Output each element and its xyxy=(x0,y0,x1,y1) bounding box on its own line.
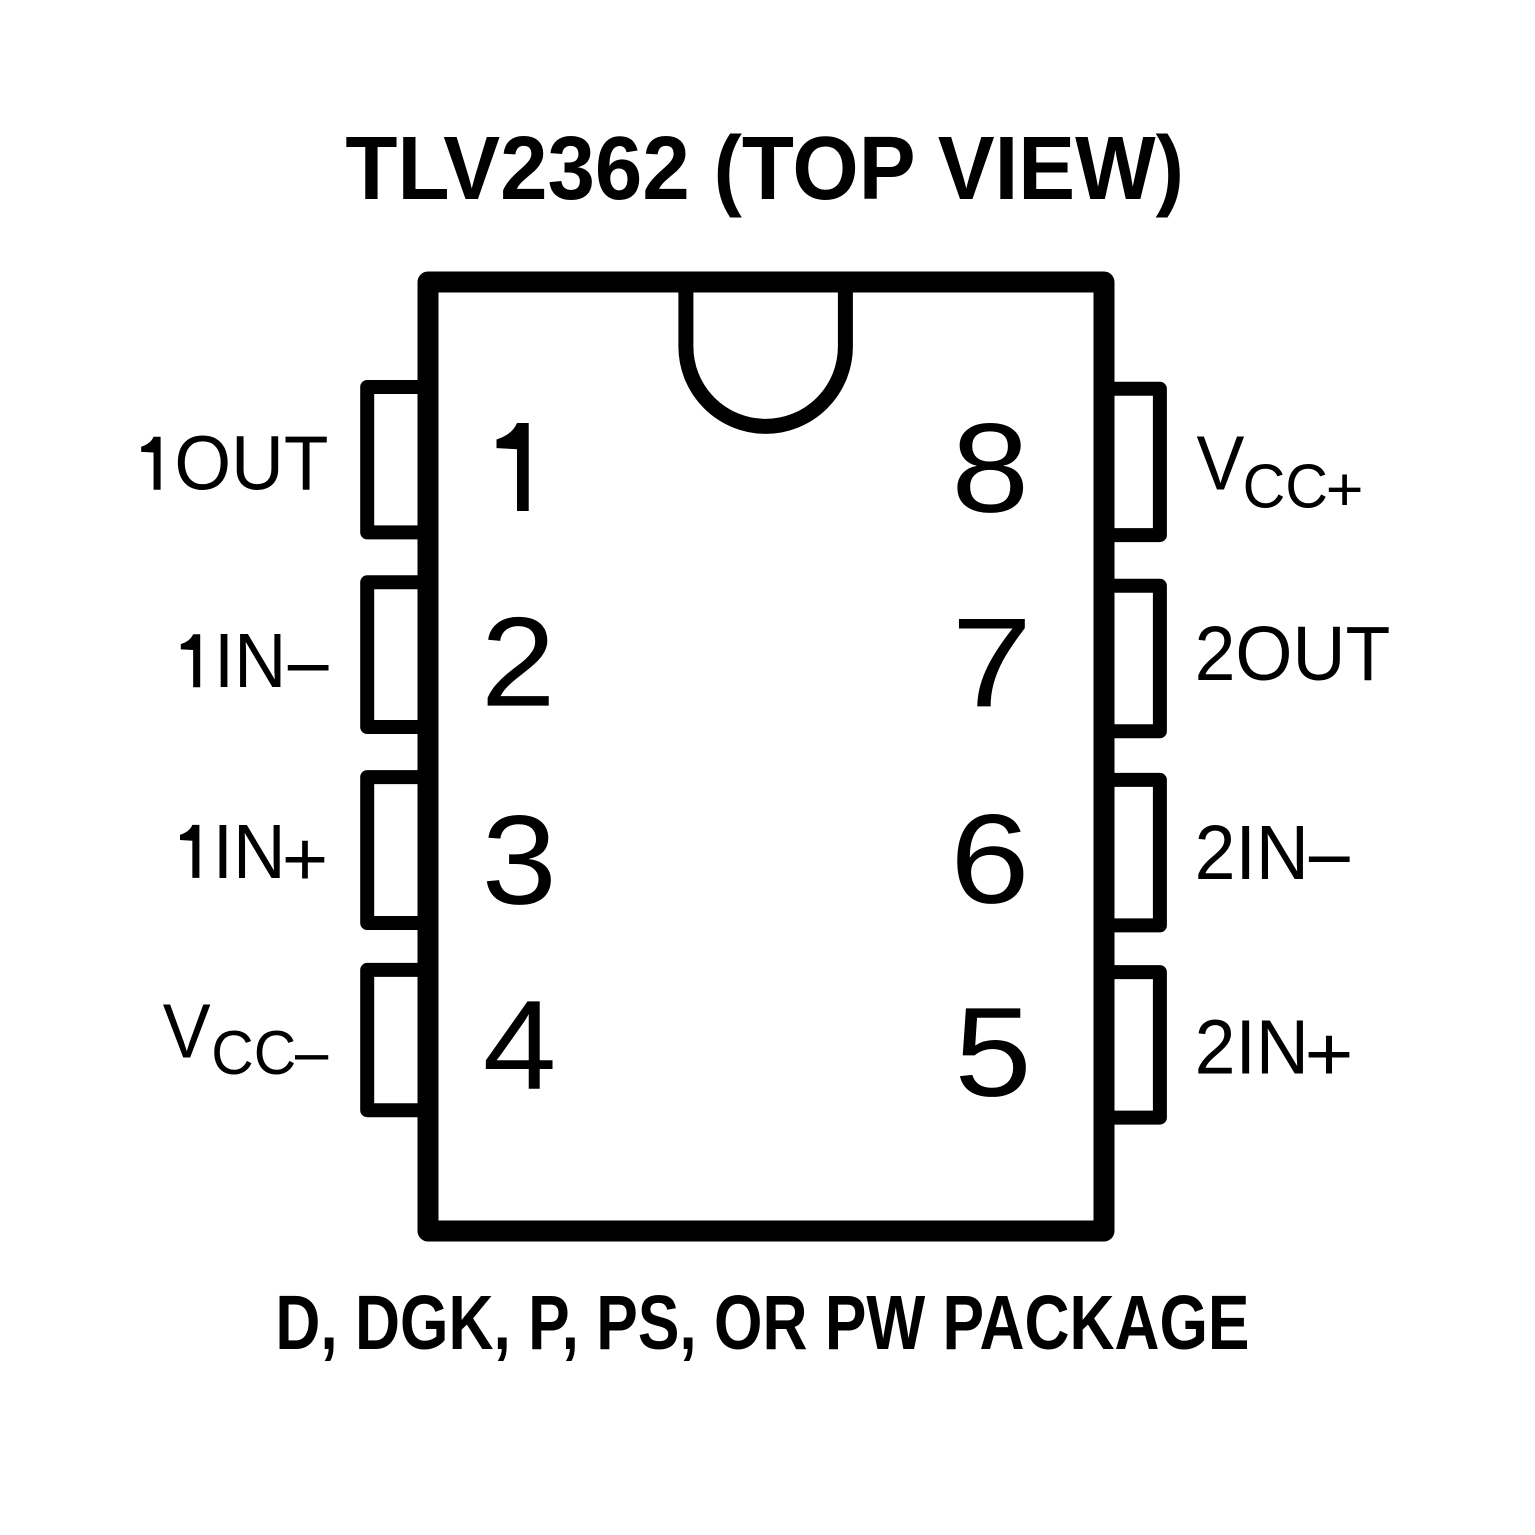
svg-text:CC: CC xyxy=(1243,452,1328,521)
svg-text:V: V xyxy=(1197,420,1245,506)
svg-text:V: V xyxy=(163,988,211,1074)
svg-text:D, DGK, P, PS, OR PW PACKAGE: D, DGK, P, PS, OR PW PACKAGE xyxy=(275,1280,1249,1366)
svg-text:4: 4 xyxy=(483,974,557,1116)
svg-text:5: 5 xyxy=(954,981,1031,1123)
svg-text:TLV2362 (TOP VIEW): TLV2362 (TOP VIEW) xyxy=(345,119,1184,219)
svg-text:7: 7 xyxy=(952,591,1033,733)
svg-text:2OUT: 2OUT xyxy=(1195,611,1391,697)
svg-text:8: 8 xyxy=(951,397,1029,539)
svg-text:+: + xyxy=(1305,1011,1354,1097)
svg-text:6: 6 xyxy=(950,788,1030,930)
svg-text:IN: IN xyxy=(214,618,286,704)
svg-text:−: − xyxy=(1305,816,1354,902)
svg-text:2IN: 2IN xyxy=(1195,1005,1309,1091)
svg-text:2: 2 xyxy=(481,591,556,733)
svg-text:+: + xyxy=(282,816,329,902)
svg-text:CC: CC xyxy=(211,1019,296,1088)
svg-text:−: − xyxy=(292,1023,332,1092)
svg-text:OUT: OUT xyxy=(174,421,328,507)
svg-text:IN: IN xyxy=(213,809,286,895)
svg-text:3: 3 xyxy=(482,789,557,931)
svg-text:2IN: 2IN xyxy=(1195,810,1309,896)
svg-text:−: − xyxy=(284,624,333,710)
svg-text:+: + xyxy=(1326,455,1364,524)
